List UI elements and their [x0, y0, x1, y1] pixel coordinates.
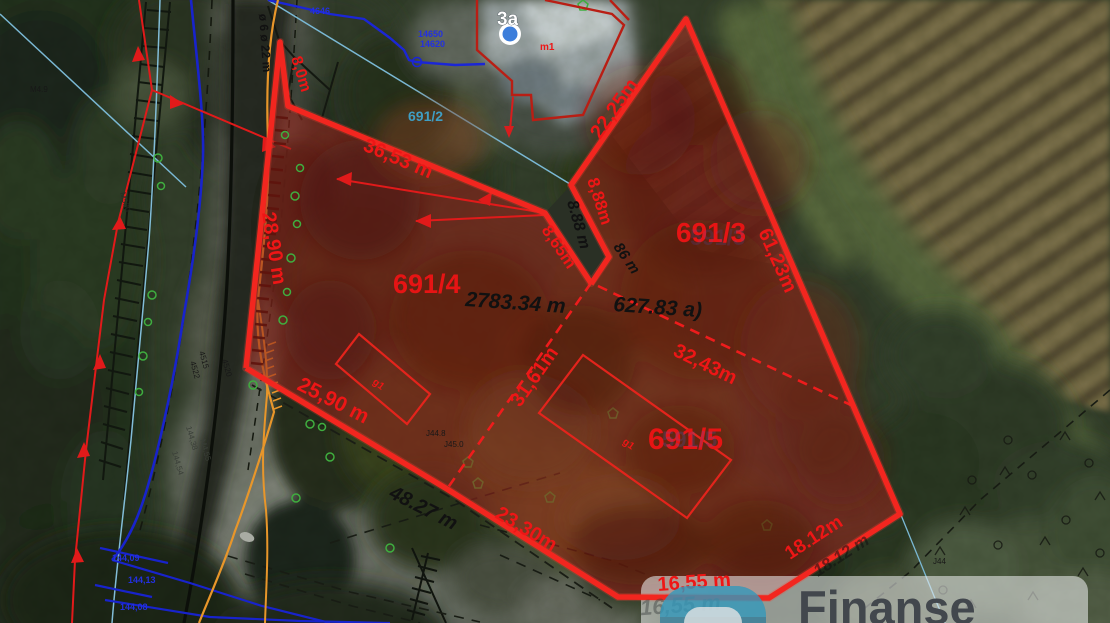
svg-text:144,08: 144,08 [120, 602, 148, 612]
svg-text:691/4: 691/4 [393, 269, 461, 299]
svg-text:4646: 4646 [310, 6, 330, 16]
svg-text:591/5: 591/5 [662, 427, 717, 452]
svg-text:14620: 14620 [420, 39, 445, 49]
svg-text:m1: m1 [540, 42, 555, 53]
svg-text:14650: 14650 [418, 29, 443, 39]
svg-text:691/2: 691/2 [408, 108, 443, 124]
svg-text:J45.0: J45.0 [444, 440, 464, 449]
svg-text:J44: J44 [933, 557, 946, 566]
svg-text:144,13: 144,13 [128, 575, 156, 585]
svg-text:3a: 3a [497, 9, 519, 30]
svg-text:144,09: 144,09 [112, 553, 140, 563]
svg-text:591/3: 591/3 [690, 225, 745, 250]
svg-text:Finanse: Finanse [798, 581, 976, 623]
svg-text:M4.9: M4.9 [30, 85, 48, 94]
svg-text:J44.8: J44.8 [426, 429, 446, 438]
